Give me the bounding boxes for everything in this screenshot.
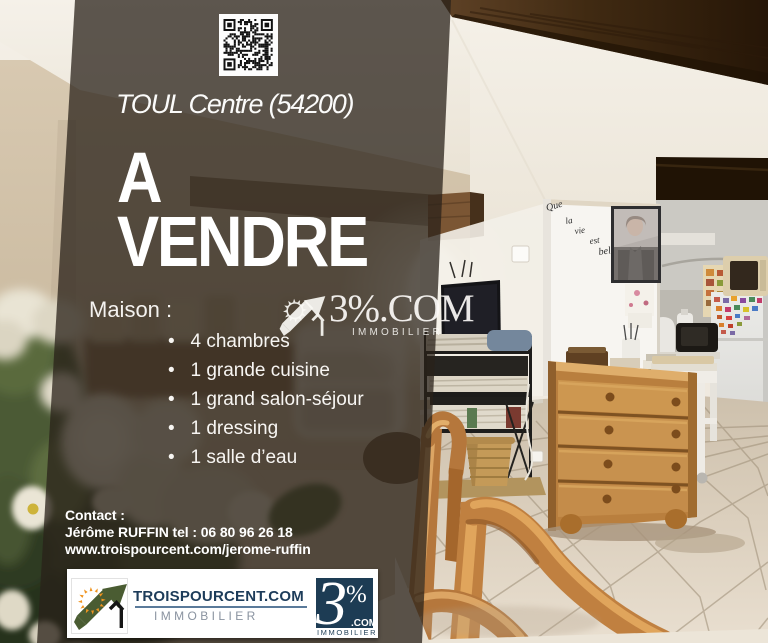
- svg-text:%: %: [346, 581, 367, 608]
- svg-text:IMMOBILIER: IMMOBILIER: [317, 628, 375, 636]
